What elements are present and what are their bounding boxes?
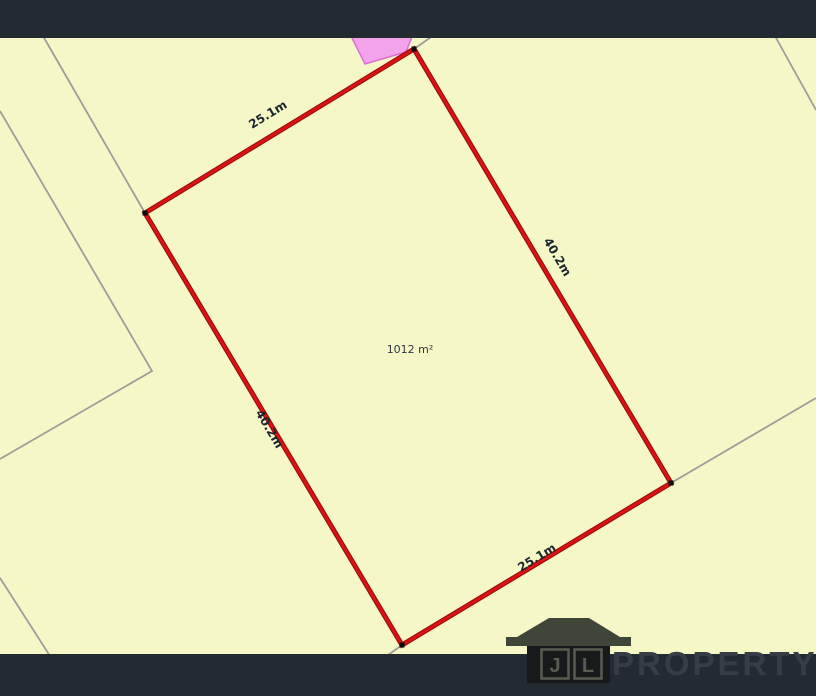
- house-roof: [517, 618, 620, 637]
- jl-property-logo: J L PROPERTY: [503, 613, 813, 689]
- logo-letter-j: J: [549, 655, 560, 677]
- vertex-marker: [412, 47, 417, 52]
- neighbor-line-left-chevron: [0, 111, 152, 459]
- dimension-label-left: 40.2m: [253, 407, 286, 450]
- property-map-screenshot: 25.1m 40.2m 40.2m 25.1m 1012 m² J L PROP…: [0, 0, 816, 696]
- top-letterbox-bar: [0, 0, 816, 38]
- logo-letter-l: L: [582, 655, 594, 677]
- parcel-area-label: 1012 m²: [387, 343, 434, 356]
- vertex-marker: [143, 211, 148, 216]
- vertex-marker: [669, 481, 674, 486]
- neighbor-line-bottom-left: [0, 578, 50, 656]
- neighbor-line-right: [671, 398, 816, 483]
- dimension-label-bottom: 25.1m: [515, 541, 558, 575]
- neighbor-line-top-left: [43, 36, 145, 213]
- vertex-marker: [400, 643, 405, 648]
- logo-wordmark: PROPERTY: [612, 645, 816, 683]
- map-canvas[interactable]: 25.1m 40.2m 40.2m 25.1m 1012 m²: [0, 0, 816, 696]
- pink-overlay-shape: [350, 34, 413, 64]
- neighbor-line-top-right: [775, 36, 816, 110]
